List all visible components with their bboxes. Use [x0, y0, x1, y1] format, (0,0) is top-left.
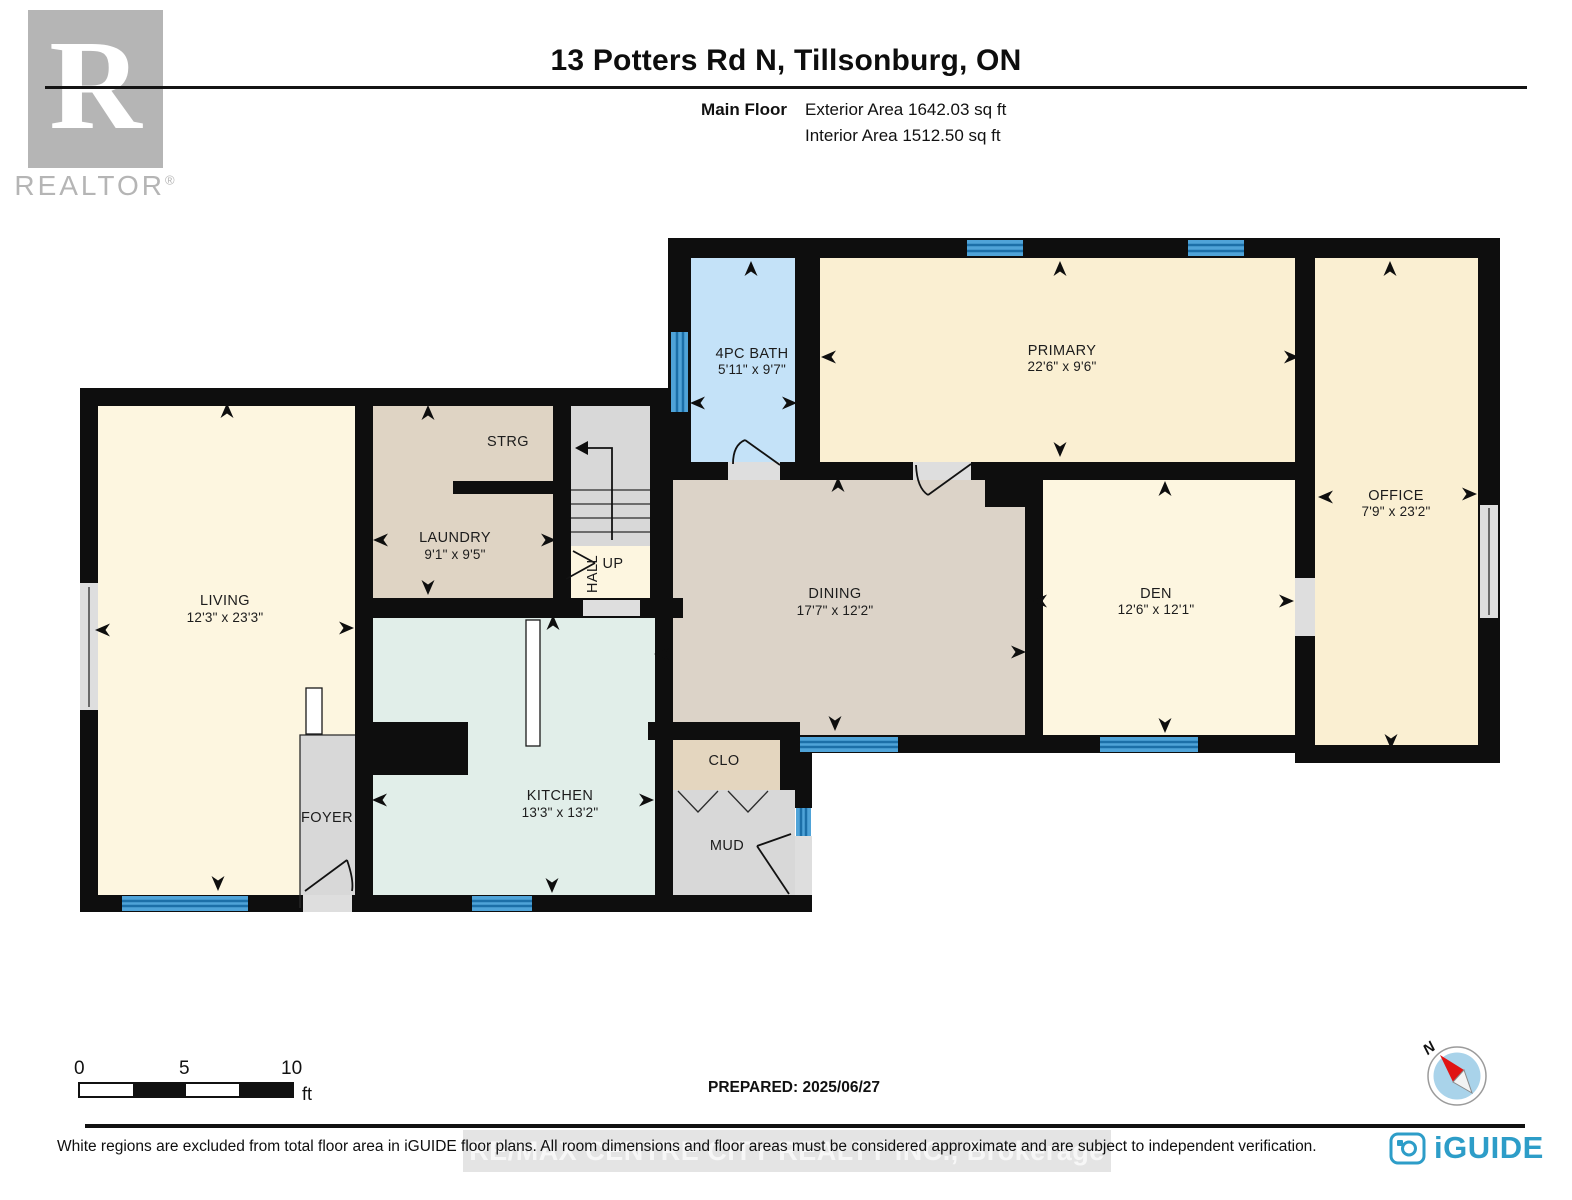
hall-area — [571, 546, 650, 600]
hall-label: HALL — [585, 555, 601, 593]
stairs-area — [571, 406, 650, 546]
mud-door-opening — [795, 836, 812, 895]
mud-label: MUD — [710, 838, 744, 854]
living-window — [122, 896, 248, 911]
living-dims: 12'3" x 23'3" — [187, 610, 264, 625]
bath-label: 4PC BATH — [715, 346, 788, 362]
footer-divider — [85, 1124, 1525, 1128]
compass: N — [1420, 1038, 1486, 1105]
floor-plan-drawing: LIVING 12'3" x 23'3" LAUNDRY 9'1" x 9'5"… — [0, 0, 1572, 1200]
floor-plan-page: R REALTOR® 13 Potters Rd N, Tillsonburg,… — [0, 0, 1572, 1200]
primary-dims: 22'6" x 9'6" — [1028, 359, 1097, 374]
office-label: OFFICE — [1368, 488, 1424, 504]
den-label: DEN — [1140, 586, 1172, 602]
den-office-opening — [1295, 578, 1315, 636]
header-divider — [45, 86, 1527, 89]
kitchen-dims: 13'3" x 13'2" — [522, 805, 599, 820]
kitchen-door-leaf — [526, 620, 540, 746]
kitchen-label: KITCHEN — [527, 788, 593, 804]
primary-window-1 — [967, 240, 1023, 256]
dining-dims: 17'7" x 12'2" — [797, 603, 874, 618]
foyer-label: FOYER — [301, 810, 353, 826]
iguide-wordmark: iGUIDE — [1434, 1130, 1544, 1166]
scale-unit: ft — [302, 1084, 312, 1105]
scale-bar-segments — [78, 1082, 294, 1098]
scale-bar: 0 5 10 ft — [78, 1058, 338, 1104]
laundry-dims: 9'1" x 9'5" — [424, 547, 485, 562]
scale-end: 10 — [281, 1058, 302, 1080]
primary-label: PRIMARY — [1028, 343, 1097, 359]
closet-label: CLO — [708, 753, 739, 769]
mud-window — [796, 808, 811, 836]
hall-kitchen-opening — [583, 600, 640, 616]
bath-window — [671, 332, 688, 412]
laundry-label: LAUNDRY — [419, 530, 491, 546]
entry-door-opening — [303, 895, 352, 912]
disclaimer-text: White regions are excluded from total fl… — [57, 1138, 1317, 1156]
dining-window — [800, 737, 898, 752]
bath-dims: 5'11" x 9'7" — [718, 362, 786, 377]
den-window — [1100, 737, 1198, 752]
office-dims: 7'9" x 23'2" — [1362, 504, 1431, 519]
iguide-logo: iGUIDE — [1388, 1130, 1544, 1166]
realtor-logo: R — [28, 10, 163, 168]
den-dims: 12'6" x 12'1" — [1118, 602, 1195, 617]
scale-start: 0 — [74, 1058, 85, 1080]
prepared-date: PREPARED: 2025/06/27 — [708, 1079, 880, 1097]
living-label: LIVING — [200, 593, 250, 609]
primary-window-2 — [1188, 240, 1244, 256]
storage-label: STRG — [487, 434, 529, 450]
scale-mid: 5 — [179, 1058, 190, 1080]
realtor-r-glyph: R — [49, 21, 141, 149]
iguide-camera-icon — [1388, 1130, 1428, 1166]
living-door-leaf — [306, 688, 322, 734]
dining-label: DINING — [808, 586, 861, 602]
bath-door-opening — [728, 462, 780, 480]
kitchen-window — [472, 896, 532, 911]
up-label: UP — [603, 556, 624, 572]
